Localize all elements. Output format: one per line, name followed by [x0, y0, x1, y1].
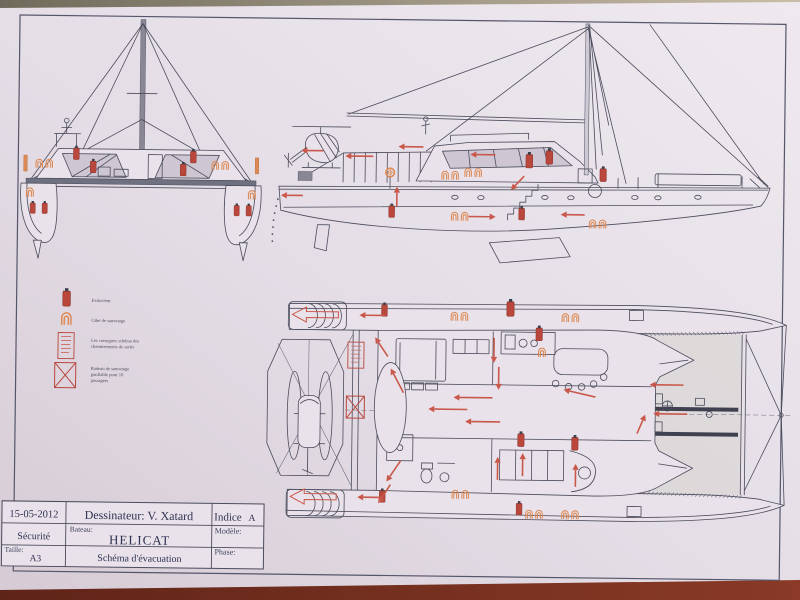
model-label: Modèle: [215, 526, 242, 535]
fire-extinguisher-icon [518, 431, 525, 446]
fire-extinguisher-icon [234, 203, 239, 215]
fire-extinguisher-icon [389, 204, 395, 218]
fire-extinguisher-icon [382, 302, 388, 316]
fire-extinguisher-icon [507, 299, 514, 316]
fire-extinguisher-icon [190, 149, 196, 163]
fire-extinguisher-icon [63, 288, 71, 306]
index-value: A [248, 514, 255, 524]
fire-extinguisher-icon [516, 501, 522, 515]
fire-extinguisher-icon [536, 326, 543, 341]
department-label: Sécurité [17, 531, 50, 542]
phase-label: Phase: [214, 547, 235, 556]
fire-extinguisher-icon [600, 166, 607, 181]
drawing-sheet: Extincteur Gilet de sauvetage Les consig… [0, 0, 800, 600]
davit-post [24, 155, 28, 171]
fire-extinguisher-icon [572, 435, 579, 450]
legend-label: Les consignes schéma des [91, 338, 139, 344]
index-label: Indice [214, 511, 242, 523]
legend-label: passagers [91, 378, 109, 383]
fire-extinguisher-icon [73, 146, 79, 160]
fire-extinguisher-icon [30, 201, 35, 213]
davit-post [255, 158, 259, 174]
size-label: Taille: [4, 545, 23, 554]
legend-label: Gilet de sauvetage [91, 318, 125, 323]
designer-value: Dessinateur: V. Xatard [85, 508, 194, 523]
fire-extinguisher-icon [526, 152, 533, 168]
date-value: 15-05-2012 [9, 509, 58, 521]
fire-extinguisher-icon [42, 201, 47, 213]
title-block: 15-05-2012 Dessinateur: V. Xatard Indice… [1, 501, 264, 569]
legend-label: Radeau de sauvetage [91, 366, 130, 371]
legend-label: Extincteur [92, 298, 112, 303]
legend-label: gonflable pour 10 [91, 372, 124, 377]
fire-extinguisher-icon [546, 148, 553, 164]
fire-extinguisher-icon [90, 159, 96, 173]
drawing-title: Schéma d'évacuation [97, 553, 181, 565]
fire-extinguisher-icon [246, 204, 251, 216]
life-buoy-icon [386, 168, 395, 177]
boat-name: HELICAT [109, 532, 170, 548]
boat-label: Bateau: [70, 525, 93, 534]
fire-extinguisher-icon [180, 162, 186, 176]
fire-extinguisher-icon [519, 206, 525, 220]
legend-label: cheminements de sortie [91, 344, 134, 350]
size-value: A3 [30, 554, 42, 564]
evacuation-plan-photo: Extincteur Gilet de sauvetage Les consig… [0, 0, 800, 600]
